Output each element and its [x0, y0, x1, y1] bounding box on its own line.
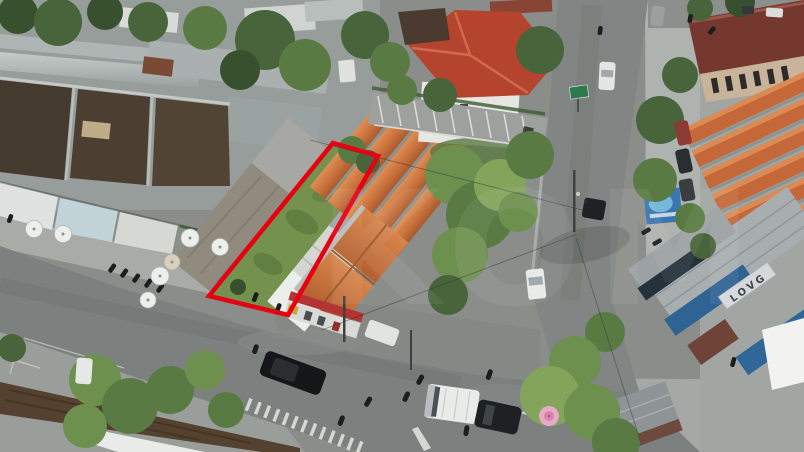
white-car-parking [75, 357, 93, 384]
pink-umbrella [539, 406, 559, 426]
umbrella [26, 221, 43, 238]
white-truck-trees [338, 59, 356, 82]
umbrella [151, 267, 169, 285]
car-top-right-1 [766, 7, 784, 17]
umbrella [212, 239, 229, 256]
umbrella [55, 226, 72, 243]
aerial-photo: LOVG [0, 0, 804, 452]
umbrella [181, 229, 199, 247]
car-top-right-2 [742, 6, 754, 14]
white-van [424, 384, 480, 425]
umbrella-tan [164, 254, 180, 270]
car-top-right-3 [650, 5, 666, 27]
watermark-text: KOM [318, 158, 767, 342]
umbrella [140, 292, 156, 308]
white-car-top-road [598, 62, 615, 91]
